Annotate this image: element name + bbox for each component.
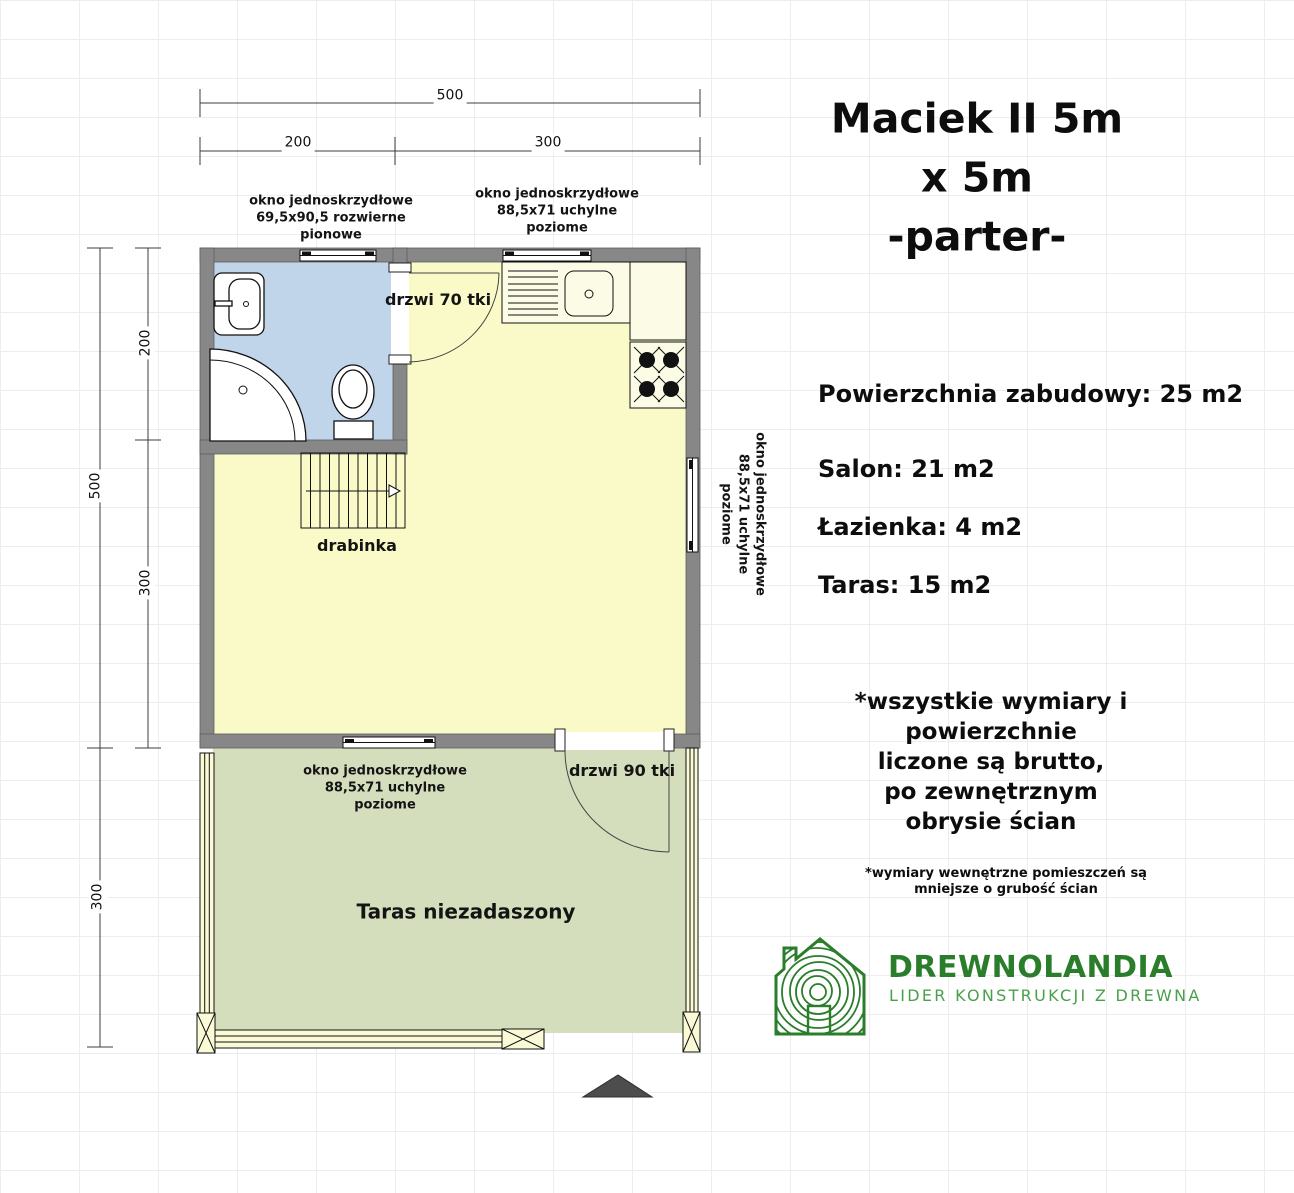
note-gross: *wszystkie wymiary i powierzchnie liczon… bbox=[840, 687, 1143, 837]
dim-left-upper: 200 bbox=[137, 327, 155, 360]
dim-top-total: 500 bbox=[434, 87, 467, 105]
note-internal: *wymiary wewnętrzne pomieszczeń są mniej… bbox=[862, 866, 1150, 899]
dim-top-right: 300 bbox=[532, 134, 565, 152]
logo-name: DREWNOLANDIA bbox=[888, 950, 1173, 985]
terrace-post bbox=[197, 1013, 215, 1053]
dim-left-lower: 300 bbox=[137, 567, 155, 600]
window-terrace-label: okno jednoskrzydłowe 88,5x71 uchylne poz… bbox=[303, 763, 467, 814]
window-right-label: okno jednoskrzydłowe 88,5x71 uchylne poz… bbox=[718, 432, 769, 596]
window-right-wall bbox=[687, 458, 698, 552]
door-terrace-label: drzwi 90 tki bbox=[569, 761, 675, 781]
area-bathroom: Łazienka: 4 m2 bbox=[818, 513, 1022, 541]
stove-icon bbox=[630, 342, 686, 408]
north-arrow-icon bbox=[583, 1075, 652, 1097]
area-terrace: Taras: 15 m2 bbox=[818, 571, 991, 599]
bathroom-wall-horizontal bbox=[200, 440, 407, 454]
page-title: Maciek II 5m x 5m -parter- bbox=[819, 90, 1136, 267]
dim-terrace-height: 300 bbox=[89, 881, 107, 914]
window-kitchen-top bbox=[503, 250, 591, 261]
window-kitchen-label: okno jednoskrzydłowe 88,5x71 uchylne poz… bbox=[475, 186, 639, 237]
door-bathroom-label: drzwi 70 tki bbox=[385, 290, 491, 310]
terrace-post bbox=[683, 1012, 700, 1052]
dim-left-total: 500 bbox=[87, 470, 105, 503]
drewnolandia-logo-icon bbox=[768, 928, 872, 1040]
dim-top-left: 200 bbox=[282, 134, 315, 152]
toilet-icon bbox=[332, 365, 374, 439]
terrace-post bbox=[502, 1029, 544, 1049]
window-terrace-wall bbox=[343, 737, 435, 748]
window-bathroom-label: okno jednoskrzydłowe 69,5x90,5 rozwierne… bbox=[249, 193, 413, 244]
window-bathroom-top bbox=[300, 250, 376, 261]
sink-icon bbox=[214, 273, 264, 335]
terrace-label: Taras niezadaszony bbox=[357, 900, 576, 925]
area-salon: Salon: 21 m2 bbox=[818, 455, 995, 483]
floor-plan-page: { "header": { "title_line1": "Maciek II … bbox=[0, 0, 1294, 1193]
logo-tagline: LIDER KONSTRUKCJI Z DREWNA bbox=[889, 986, 1202, 1005]
area-total: Powierzchnia zabudowy: 25 m2 bbox=[818, 380, 1243, 408]
stairs-label: drabinka bbox=[317, 536, 397, 556]
